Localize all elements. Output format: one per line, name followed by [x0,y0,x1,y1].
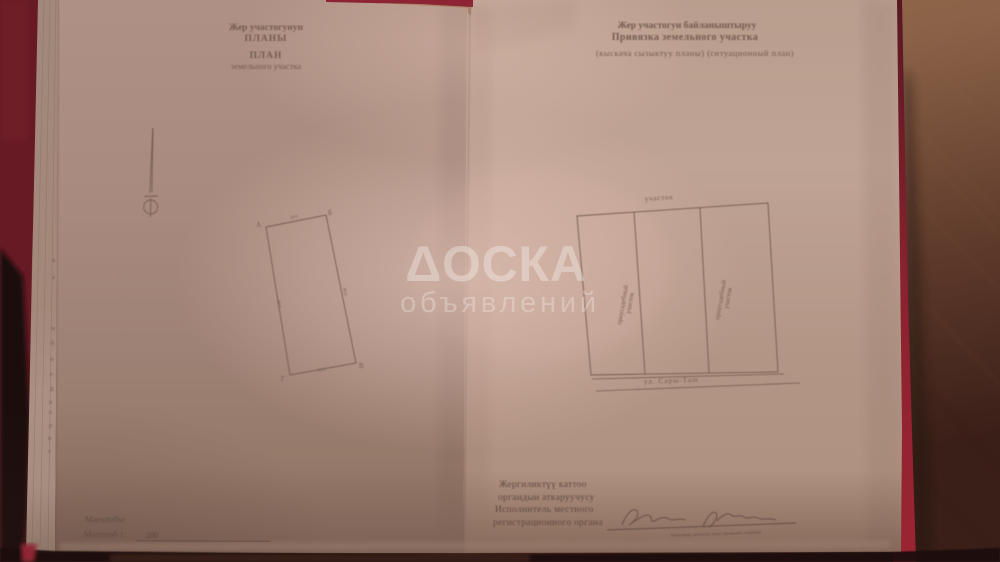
svg-text:регистрационного органа: регистрационного органа [493,518,603,528]
svg-text:200: 200 [146,531,158,540]
svg-text:Жер участогун байланыштыруу: Жер участогун байланыштыруу [618,20,757,31]
svg-text:Б: Б [328,209,332,217]
svg-text:объявлений: объявлений [400,287,600,319]
svg-text:а: а [52,274,55,281]
svg-text:Б: Б [50,386,54,393]
svg-text:Масштабы: Масштабы [85,514,125,524]
svg-text:органдын аткаруучусу: органдын аткаруучусу [498,493,595,503]
svg-text:е: е [50,371,53,378]
svg-text:ΔОСКА: ΔОСКА [405,236,587,292]
svg-text:(кыскача сызыктуу планы) (ситу: (кыскача сызыктуу планы) (ситуационный п… [596,48,794,58]
svg-text:ПЛАНЫ: ПЛАНЫ [244,34,287,44]
svg-text:Г: Г [281,375,285,383]
svg-text:Жер участогунун: Жер участогунун [229,23,303,33]
svg-text:Исполнитель местного: Исполнитель местного [495,505,594,515]
svg-text:Жергиликтүү каттоо: Жергиликтүү каттоо [499,480,587,490]
svg-text:земельного участка: земельного участка [231,61,302,71]
svg-text:ПЛАН: ПЛАН [250,51,283,61]
svg-text:м: м [51,325,55,332]
svg-text:А: А [256,221,261,229]
svg-text:н: н [50,356,54,363]
svg-text:Масштаб 1:: Масштаб 1: [84,529,126,539]
svg-text:В: В [359,362,364,370]
svg-text:в: в [52,257,55,264]
svg-text:Привязка земельного участка: Привязка земельного участка [612,32,758,43]
